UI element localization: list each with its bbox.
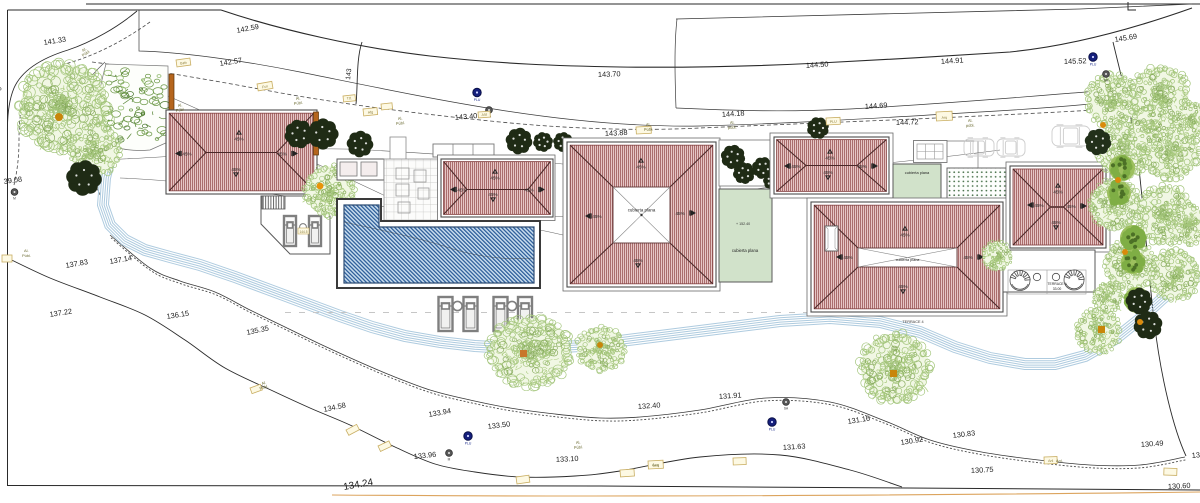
svg-text:cubierta plana: cubierta plana [732, 248, 759, 253]
svg-text:45%: 45% [231, 167, 240, 172]
svg-text:cubierta plana: cubierta plana [905, 170, 930, 175]
svg-text:131.63: 131.63 [783, 441, 806, 452]
svg-text:45%: 45% [182, 151, 191, 156]
svg-text:45%: 45% [278, 151, 287, 156]
svg-text:143.88: 143.88 [605, 128, 628, 138]
svg-text:45%: 45% [1034, 203, 1043, 208]
svg-text:144.91: 144.91 [941, 55, 964, 66]
svg-text:130.60: 130.60 [1168, 481, 1191, 491]
svg-text:Públ.: Públ. [644, 127, 653, 132]
svg-text:PLU: PLU [830, 120, 838, 124]
svg-text:144.72: 144.72 [896, 117, 919, 127]
svg-text:45%: 45% [457, 187, 466, 192]
svg-text:144.69: 144.69 [865, 100, 888, 111]
svg-text:cubierta plana: cubierta plana [896, 258, 921, 262]
svg-text:45%: 45% [1053, 190, 1062, 195]
svg-text:45%: 45% [825, 156, 834, 161]
svg-text:+ 152.40: + 152.40 [736, 222, 750, 226]
svg-text:Tlf.: Tlf. [347, 96, 352, 101]
svg-text:45%: 45% [900, 233, 909, 238]
svg-text:TERRACE 4: TERRACE 4 [1047, 282, 1066, 286]
svg-text:130.75: 130.75 [971, 465, 994, 475]
svg-text:45%: 45% [488, 192, 497, 197]
svg-text:públ.: públ. [966, 123, 975, 128]
svg-text:Afg: Afg [368, 110, 374, 115]
svg-text:143: 143 [345, 68, 353, 80]
svg-text:45%: 45% [234, 137, 243, 142]
svg-text:45%: 45% [843, 255, 852, 260]
svg-text:TERRACE 4: TERRACE 4 [902, 320, 923, 324]
svg-text:45%: 45% [898, 284, 907, 289]
svg-text:Públ.: Públ. [22, 253, 31, 258]
svg-text:145.52: 145.52 [1064, 56, 1087, 66]
svg-text:144.50: 144.50 [806, 59, 829, 70]
svg-text:131.1: 131.1 [1191, 449, 1200, 460]
svg-text:45%: 45% [633, 258, 642, 263]
svg-text:132.40: 132.40 [638, 400, 661, 411]
svg-text:M: M [13, 197, 16, 201]
svg-text:Arq: Arq [941, 116, 947, 120]
svg-text:45%: 45% [964, 255, 973, 260]
svg-text:144.18: 144.18 [722, 108, 745, 119]
svg-text:143.70: 143.70 [598, 69, 621, 79]
svg-text:Anl.: Anl. [1056, 458, 1063, 463]
svg-text:130.49: 130.49 [1141, 438, 1164, 449]
svg-text:M: M [448, 458, 451, 462]
svg-text:45%: 45% [858, 164, 867, 169]
svg-text:PLU: PLU [474, 98, 481, 102]
svg-text:Anl: Anl [1048, 459, 1054, 463]
svg-text:45%: 45% [823, 170, 832, 175]
svg-text:45%: 45% [490, 176, 499, 181]
svg-text:144.5: 144.5 [300, 230, 308, 234]
svg-text:45%: 45% [1067, 204, 1076, 209]
svg-text:públ.: públ. [728, 125, 737, 130]
svg-text:45%: 45% [676, 211, 685, 216]
svg-text:PLU: PLU [1090, 63, 1097, 67]
svg-text:Ald: Ald [481, 113, 486, 117]
svg-text:PLU: PLU [465, 442, 472, 446]
svg-text:PLU: PLU [769, 428, 776, 432]
svg-text:133.10: 133.10 [556, 454, 579, 464]
svg-text:Públ.: Públ. [574, 444, 584, 450]
svg-text:45%: 45% [1051, 220, 1060, 225]
svg-text:33.00: 33.00 [1053, 287, 1062, 291]
svg-text:45%: 45% [791, 164, 800, 169]
svg-text:Acq: Acq [652, 462, 659, 467]
svg-text:Públ.: Públ. [396, 120, 406, 126]
svg-text:45%: 45% [592, 214, 601, 219]
svg-text:cubierta plana: cubierta plana [628, 208, 656, 213]
svg-text:45%: 45% [636, 165, 645, 170]
svg-text:45%: 45% [525, 187, 534, 192]
svg-text:131.91: 131.91 [719, 390, 742, 401]
